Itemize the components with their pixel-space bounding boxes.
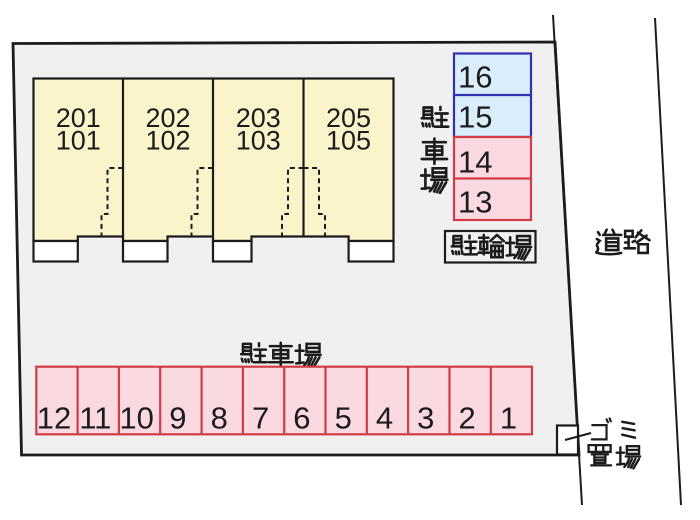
svg-text:1: 1: [500, 401, 517, 436]
svg-text:2: 2: [458, 401, 475, 436]
svg-text:8: 8: [211, 401, 228, 436]
svg-text:101: 101: [56, 125, 101, 155]
svg-text:103: 103: [236, 125, 281, 155]
svg-text:14: 14: [458, 144, 492, 179]
svg-text:16: 16: [458, 59, 492, 94]
svg-text:13: 13: [458, 185, 492, 220]
svg-text:15: 15: [458, 100, 492, 135]
svg-text:6: 6: [293, 401, 310, 436]
svg-text:102: 102: [145, 125, 190, 155]
svg-text:11: 11: [79, 401, 111, 436]
svg-text:105: 105: [326, 125, 371, 155]
svg-text:12: 12: [37, 401, 71, 436]
svg-text:4: 4: [376, 401, 393, 436]
svg-text:5: 5: [335, 401, 352, 436]
svg-text:3: 3: [417, 401, 434, 436]
svg-text:7: 7: [252, 401, 269, 436]
svg-text:10: 10: [119, 401, 153, 436]
svg-text:9: 9: [169, 401, 186, 436]
